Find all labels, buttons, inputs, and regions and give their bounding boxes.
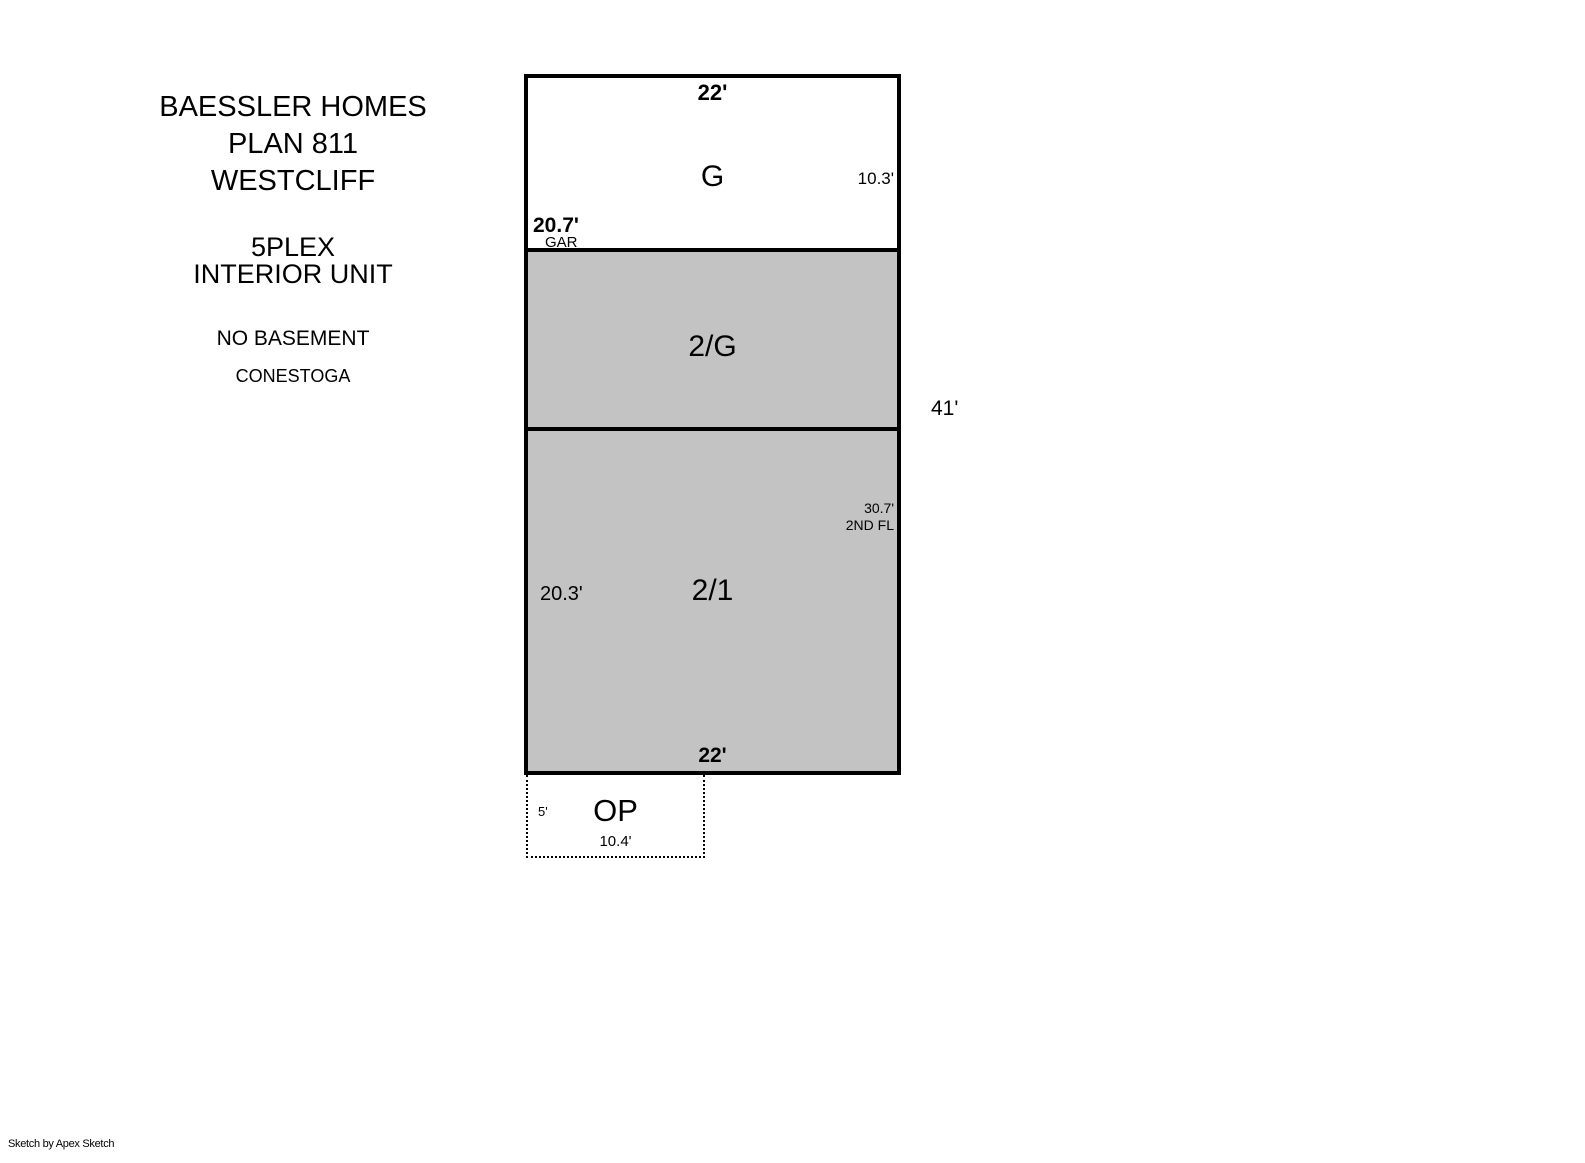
garage-sublabel: GAR (545, 235, 578, 252)
model-name: CONESTOGA (93, 366, 493, 386)
dim-garage-depth-right: 10.3' (858, 170, 894, 189)
dim-porch-width-bottom: 10.4' (528, 834, 703, 851)
main-divider-line (528, 427, 897, 431)
area-label-garage: G (528, 160, 897, 193)
apex-credit: Sketch by Apex Sketch (8, 1138, 114, 1150)
porch-label: OP (528, 794, 703, 828)
dim-main-width-bottom: 22' (528, 744, 897, 767)
area-label-second-over-garage: 2/G (528, 330, 897, 363)
basement-note: NO BASEMENT (93, 328, 493, 350)
open-porch-outline: OP 5' 10.4' (526, 775, 705, 858)
unit-type: 5PLEX (93, 234, 493, 261)
plan-number: PLAN 811 (93, 126, 493, 163)
dim-overall-depth-right: 41' (931, 397, 958, 421)
dim-second-floor-depth-right: 30.7' (864, 501, 894, 516)
unit-position: INTERIOR UNIT (93, 261, 493, 288)
builder-name: BAESSLER HOMES (93, 89, 493, 126)
second-floor-sublabel: 2ND FL (846, 518, 894, 533)
garage-divider-line (528, 248, 897, 252)
area-label-two-story: 2/1 (528, 574, 897, 607)
title-block: BAESSLER HOMES PLAN 811 WESTCLIFF 5PLEX … (93, 89, 493, 386)
sketch-page: BAESSLER HOMES PLAN 811 WESTCLIFF 5PLEX … (0, 0, 1585, 1163)
floor-plan-outline: 22' G 10.3' 20.7' GAR 2/G 30.7' 2ND FL 2… (524, 74, 901, 775)
dim-garage-width-top: 22' (528, 81, 897, 105)
plan-name: WESTCLIFF (93, 163, 493, 200)
dim-porch-depth-left: 5' (538, 805, 548, 819)
